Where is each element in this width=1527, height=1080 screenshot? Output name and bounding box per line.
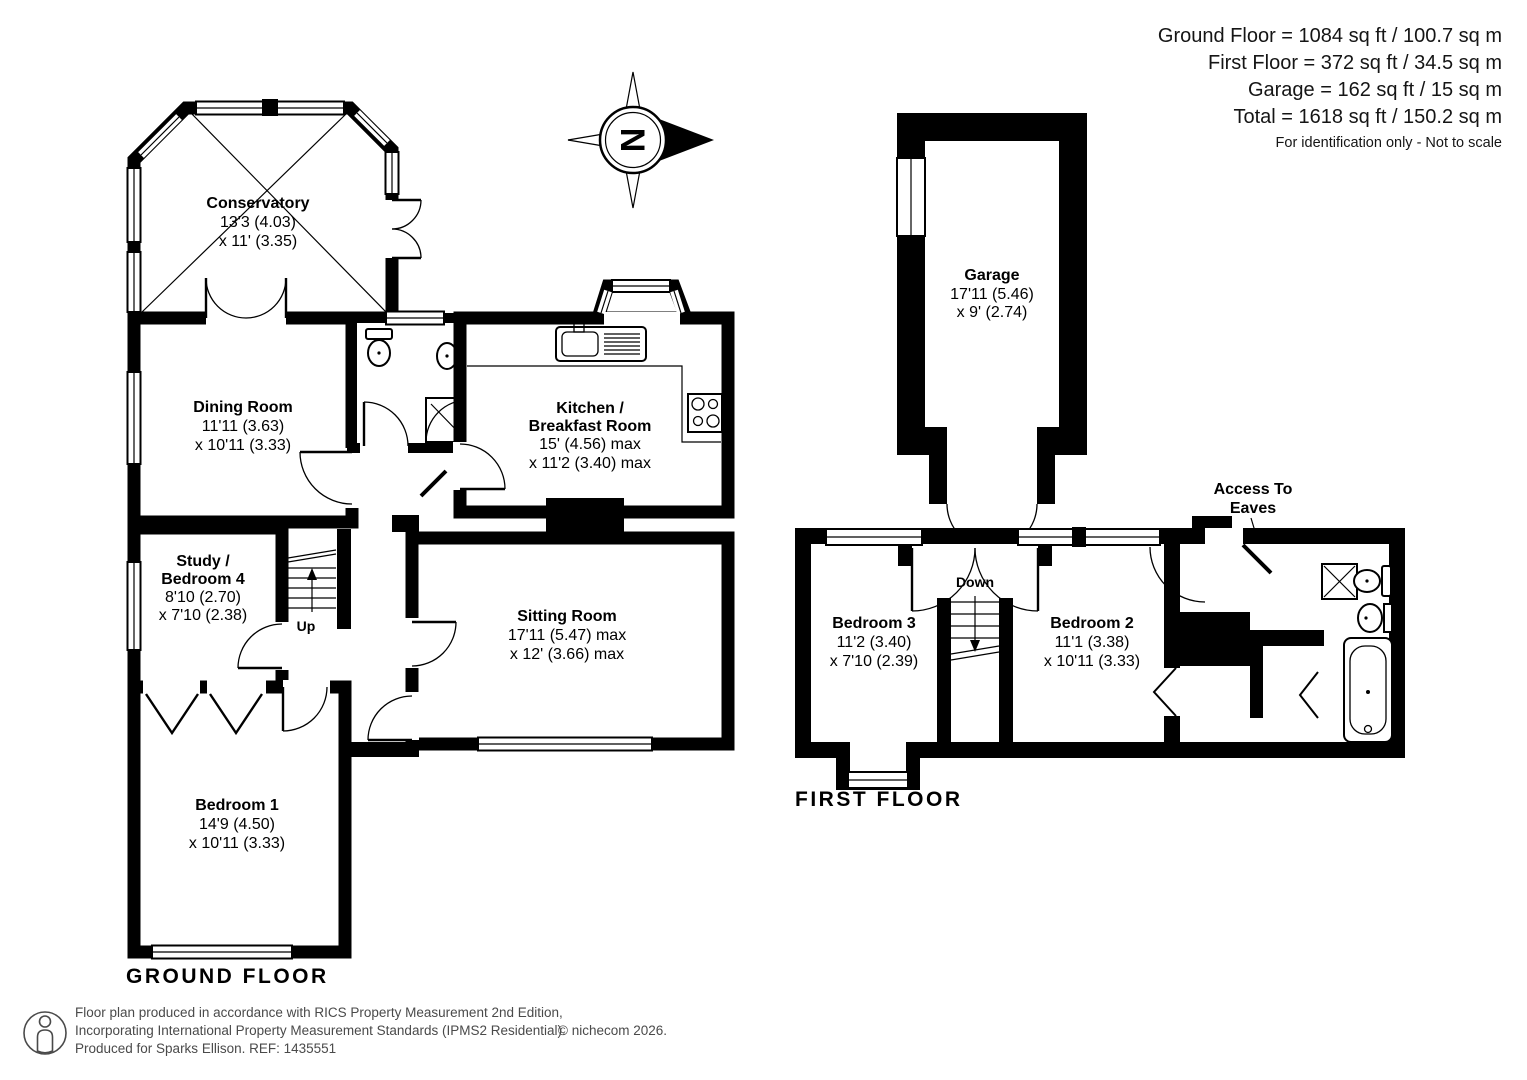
svg-text:x 7'10 (2.38): x 7'10 (2.38) — [159, 607, 247, 624]
room-shower-wc — [352, 312, 468, 456]
ground-floor-title: GROUND FLOOR — [126, 965, 329, 988]
label-study: Study / — [176, 553, 230, 570]
room-sitting — [368, 538, 728, 751]
svg-text:Access To: Access To — [1214, 481, 1293, 498]
nichecom-logo-icon — [24, 1012, 66, 1054]
shower-icon — [1322, 564, 1357, 599]
label-kitchen: Kitchen / — [556, 400, 624, 417]
toilet-icon — [366, 329, 392, 339]
svg-text:Eaves: Eaves — [1230, 500, 1276, 517]
label-dining: Dining Room — [193, 399, 293, 416]
svg-text:x 10'11 (3.33): x 10'11 (3.33) — [195, 437, 291, 454]
label-bedroom1: Bedroom 1 — [195, 797, 279, 814]
svg-text:x 9' (2.74): x 9' (2.74) — [957, 304, 1028, 321]
north-letter: N — [613, 128, 651, 153]
room-garage — [897, 113, 1087, 549]
kitchen-sink-icon — [556, 322, 646, 361]
hall-wall — [392, 515, 419, 532]
svg-text:x 10'11 (3.33): x 10'11 (3.33) — [189, 835, 285, 852]
basin-icon-ff — [1358, 604, 1392, 632]
footer-copyright: © nichecom 2026. — [558, 1023, 667, 1038]
svg-text:x 11'2 (3.40) max: x 11'2 (3.40) max — [529, 455, 651, 472]
stairs-up — [288, 529, 351, 629]
room-kitchen — [453, 280, 728, 512]
svg-text:x 12' (3.66) max: x 12' (3.66) max — [510, 646, 624, 663]
ff-chimney — [1180, 612, 1250, 666]
area-summary: Ground Floor = 1084 sq ft / 100.7 sq m F… — [1158, 25, 1502, 151]
label-bedroom2: Bedroom 2 — [1050, 615, 1134, 632]
svg-text:11'1 (3.38): 11'1 (3.38) — [1055, 634, 1130, 651]
first-floor-title: FIRST FLOOR — [795, 788, 963, 811]
ajar-door — [421, 471, 446, 496]
footer-line3: Produced for Sparks Ellison. REF: 143555… — [75, 1041, 336, 1056]
label-up: Up — [297, 618, 316, 634]
svg-text:15' (4.56) max: 15' (4.56) max — [539, 436, 641, 453]
summary-garage: Garage = 162 sq ft / 15 sq m — [1248, 79, 1502, 101]
svg-text:8'10 (2.70): 8'10 (2.70) — [165, 589, 241, 606]
svg-text:17'11 (5.46): 17'11 (5.46) — [950, 286, 1034, 303]
floor-plan-canvas: GROUND FLOOR — [0, 0, 1527, 1080]
footer-line1: Floor plan produced in accordance with R… — [75, 1005, 563, 1020]
label-bedroom3: Bedroom 3 — [832, 615, 916, 632]
footer: Floor plan produced in accordance with R… — [24, 1005, 667, 1056]
bath-icon — [1344, 638, 1392, 742]
svg-text:11'2 (3.40): 11'2 (3.40) — [837, 634, 912, 651]
svg-text:x 11' (3.35): x 11' (3.35) — [219, 233, 297, 250]
summary-first: First Floor = 372 sq ft / 34.5 sq m — [1208, 52, 1502, 74]
ground-floor-plan: GROUND FLOOR — [126, 99, 728, 988]
label-conservatory: Conservatory — [206, 195, 309, 212]
svg-text:17'11 (5.47) max: 17'11 (5.47) max — [508, 627, 626, 644]
summary-ground: Ground Floor = 1084 sq ft / 100.7 sq m — [1158, 25, 1502, 47]
summary-total: Total = 1618 sq ft / 150.2 sq m — [1234, 106, 1503, 128]
svg-text:x 10'11 (3.33): x 10'11 (3.33) — [1044, 653, 1140, 670]
svg-text:x 7'10 (2.39): x 7'10 (2.39) — [830, 653, 918, 670]
label-garage: Garage — [964, 267, 1019, 284]
hob-icon — [688, 394, 722, 432]
svg-text:Bedroom 4: Bedroom 4 — [161, 571, 245, 588]
svg-text:Breakfast Room: Breakfast Room — [529, 418, 652, 435]
label-down: Down — [956, 574, 994, 590]
svg-text:14'9 (4.50): 14'9 (4.50) — [199, 816, 275, 833]
summary-disclaimer: For identification only - Not to scale — [1276, 135, 1502, 151]
svg-text:11'11 (3.63): 11'11 (3.63) — [202, 418, 285, 435]
compass-rose: N — [568, 72, 714, 208]
up-arrow-icon — [307, 568, 317, 580]
label-sitting: Sitting Room — [517, 608, 617, 625]
first-floor-plan: FIRST FLOOR — [795, 113, 1405, 811]
footer-line2: Incorporating International Property Mea… — [75, 1023, 566, 1038]
svg-text:13'3 (4.03): 13'3 (4.03) — [220, 214, 296, 231]
